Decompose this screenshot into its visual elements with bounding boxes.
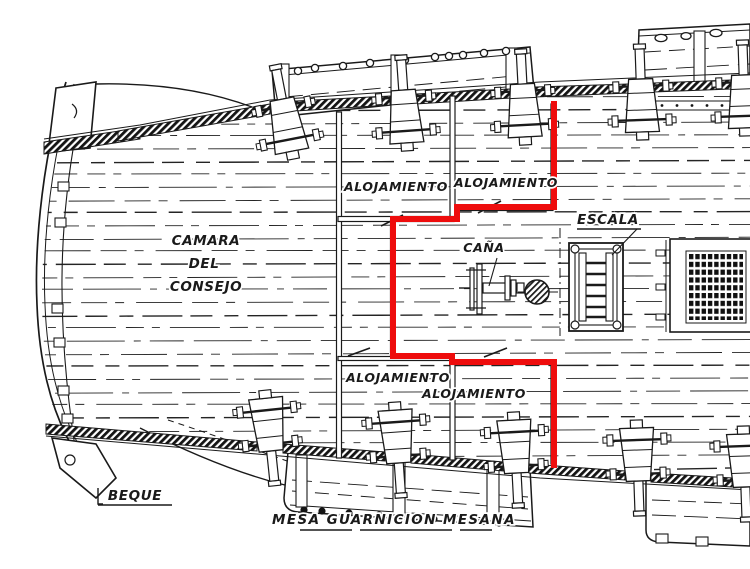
quarter-piece-bottom [52,438,116,498]
grating [656,239,750,332]
plank-line [44,340,750,342]
plank-line [170,122,750,124]
deck-plan-svg: CAMARA DEL CONSEJO ALOJAMIENTO ALOJAMIEN… [0,0,750,569]
label-alojamiento-bottom-right: ALOJAMIENTO [421,386,526,401]
door-swings [348,201,507,357]
escala-leader-line [612,229,637,255]
plank-line [50,199,750,201]
channel-platform-bottom-right [646,478,750,546]
label-cana: CAÑA [463,240,504,255]
plank-line [43,263,750,265]
gudgeon [62,414,73,423]
label-beque: BEQUE [108,488,162,504]
wall-vertical-mid-top [450,96,455,218]
plank-line [46,224,750,226]
gudgeon [58,182,69,191]
gudgeon [52,304,63,313]
chainplate-strap [296,455,307,507]
plank-line [43,327,750,328]
cana-leader-line [489,258,497,286]
plank-line [50,391,750,393]
plank-line [42,301,750,303]
label-camara-line1: CAMARA [172,233,241,249]
plank-line [57,160,750,162]
label-alojamiento-bottom-left: ALOJAMIENTO [345,370,450,385]
plank-line [48,212,750,213]
label-camara-line2: DEL [189,256,220,272]
gudgeon [55,218,66,227]
gudgeon [54,338,65,347]
plank-line [44,250,750,251]
plank-line [46,365,750,366]
plank-line [450,455,750,457]
gudgeon [58,386,69,395]
port-circle [65,455,75,465]
label-mesa-guarnicion: MESA GUARNICION MESANA [272,512,516,528]
label-alojamiento-top-left: ALOJAMIENTO [343,179,448,194]
escala-ladder [569,229,637,331]
plank-line [42,276,750,278]
chainplate-strap [694,31,705,84]
plank-line [42,314,750,316]
plank-line [45,237,750,239]
cabin-walls [337,96,556,464]
wall-vertical-left [337,112,342,458]
plank-line [54,173,750,174]
quarter-arc-top [96,84,252,107]
label-alojamiento-top-right: ALOJAMIENTO [453,175,558,190]
wall-vertical-mid-bottom [450,360,455,460]
label-camara-line3: CONSEJO [170,279,242,295]
label-escala: ESCALA [577,212,639,228]
ship-deck-plan-drawing: CAMARA DEL CONSEJO ALOJAMIENTO ALOJAMIEN… [0,0,750,569]
tiller-mechanism [459,258,524,314]
plank-line [105,135,750,136]
